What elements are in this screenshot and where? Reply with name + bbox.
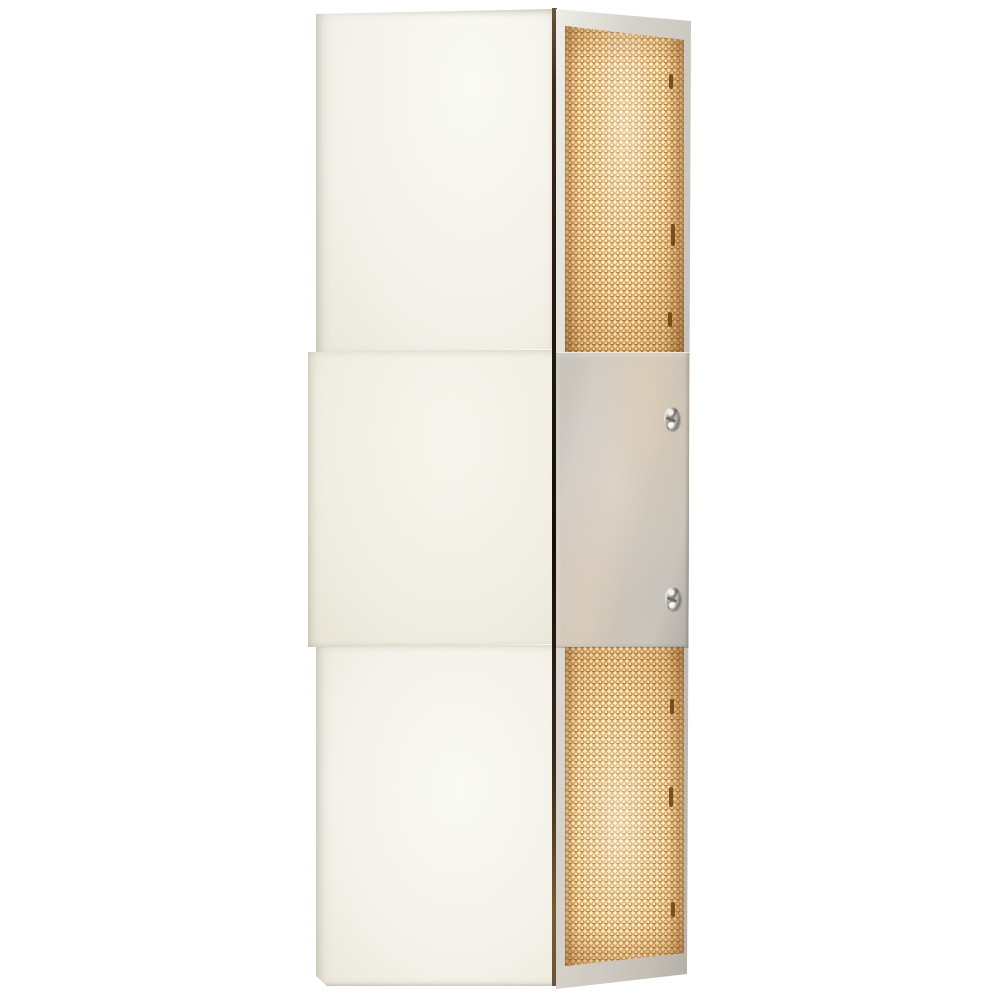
- mounting-plate: [556, 352, 689, 648]
- mesh-wrinkle-mark: [668, 312, 672, 327]
- mesh-screen-top: [565, 26, 684, 352]
- bottom-diffuser-panel: [316, 644, 554, 986]
- mesh-screen-bottom: [565, 647, 684, 966]
- mesh-wrinkle-mark: [670, 699, 674, 714]
- mounting-screw-upper: [664, 407, 680, 431]
- mesh-wrinkle-mark: [669, 74, 673, 89]
- product-photo: [0, 0, 1000, 1000]
- top-diffuser-panel: [316, 9, 554, 352]
- side-assembly: [556, 7, 692, 989]
- middle-band-panel: [308, 349, 554, 647]
- mesh-wrinkle-mark: [671, 902, 675, 917]
- mesh-wrinkle-mark: [669, 787, 673, 807]
- mesh-wrinkle-mark: [671, 224, 675, 246]
- mesh-glow: [565, 647, 684, 966]
- mounting-screw-lower: [665, 587, 681, 611]
- mesh-glow: [565, 26, 684, 352]
